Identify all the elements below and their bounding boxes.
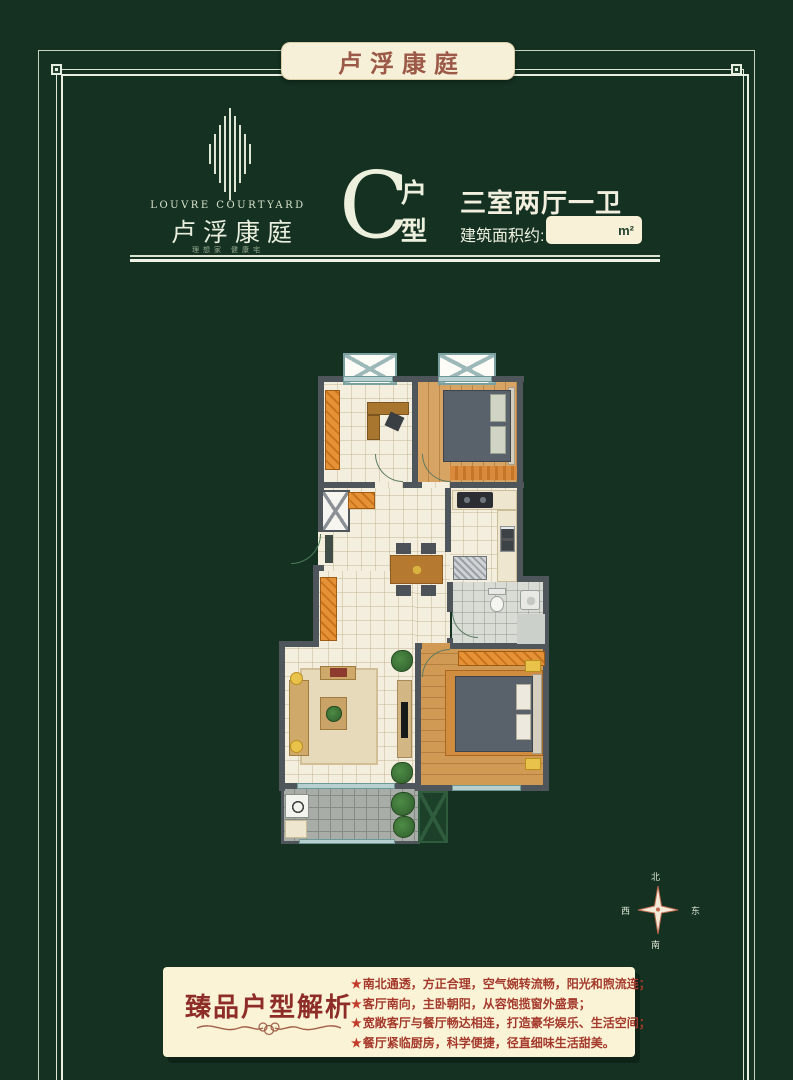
- compass-east-label: 东: [691, 904, 700, 917]
- master-headboard: [532, 674, 542, 754]
- wall-study-bedroom2: [412, 376, 418, 482]
- entrance-doormat: [325, 535, 333, 563]
- kitchen-stove: [457, 492, 493, 508]
- washing-machine: [285, 794, 309, 818]
- logo-name-en: LOUVRE COURTYARD: [130, 200, 326, 211]
- bathroom-shower-area: [517, 614, 545, 644]
- project-name: 卢浮康庭: [330, 44, 466, 79]
- living-cabinet: [320, 577, 337, 641]
- master-nightstand-2: [525, 758, 541, 770]
- study-desk-return: [367, 415, 380, 440]
- analysis-point-text: 宽敞客厅与餐厅畅达相连，打造豪华娱乐、生活空间；: [363, 1016, 651, 1030]
- bathroom-basin: [520, 590, 540, 610]
- window-sill-study: [343, 376, 393, 382]
- dining-chair-1: [396, 543, 411, 554]
- door-arc-entrance: [291, 534, 321, 564]
- master-pillow-2: [516, 714, 531, 740]
- wall-kitchen-dining: [445, 488, 451, 552]
- living-side-table-1: [290, 672, 303, 685]
- window-living-balcony: [297, 783, 395, 789]
- kitchen-fridge: [453, 556, 487, 580]
- wall-balcony-left: [281, 788, 284, 843]
- analysis-point-text: 客厅南向，主卧朝阳，从容饱揽窗外盛景；: [363, 997, 591, 1011]
- door-gap-study: [375, 482, 403, 488]
- wall-mid-horizontal: [318, 482, 524, 488]
- logo-bars-icon: [207, 106, 253, 202]
- header-separator-thick: [130, 259, 660, 262]
- compass-north-label: 北: [651, 870, 660, 883]
- dining-chair-3: [396, 585, 411, 596]
- study-wardrobe: [325, 390, 340, 470]
- master-pillow-1: [516, 684, 531, 710]
- toilet-bowl: [490, 596, 504, 612]
- area-unit: m²: [618, 223, 634, 238]
- shaft-box: [321, 490, 350, 532]
- analysis-point-text: 餐厅紧临厨房，科学便捷，径直细味生活甜美。: [363, 1036, 615, 1050]
- floor-plan: [275, 350, 570, 850]
- kitchen-sink-basin-2: [502, 541, 513, 550]
- wall-balcony-right-stub: [395, 783, 420, 789]
- study-desk: [367, 402, 409, 415]
- wall-left-upper: [318, 376, 324, 488]
- analysis-point: ★客厅南向，主卧朝阳，从容饱揽窗外盛景；: [351, 995, 629, 1015]
- window-master: [452, 785, 521, 791]
- analysis-point-text: 南北通透，方正合理，空气婉转流畅，阳光和煦流连；: [363, 977, 651, 991]
- compass-west-label: 西: [621, 904, 630, 917]
- living-side-table-2: [290, 740, 303, 753]
- star-bullet-icon: ★: [351, 977, 362, 991]
- wall-balcony-left-stub: [285, 783, 297, 789]
- dining-table: [390, 555, 443, 584]
- window-balcony: [299, 839, 395, 844]
- area-label: 建筑面积约:: [460, 222, 544, 246]
- flourish-icon: [193, 1019, 345, 1037]
- door-gap-master: [422, 643, 450, 649]
- star-bullet-icon: ★: [351, 1036, 362, 1050]
- star-bullet-icon: ★: [351, 997, 362, 1011]
- analysis-point: ★南北通透，方正合理，空气婉转流畅，阳光和煦流连；: [351, 975, 629, 995]
- dining-chair-2: [421, 543, 436, 554]
- logo-tagline: 理想家 健康宅: [130, 245, 326, 255]
- compass-south-label: 南: [651, 938, 660, 951]
- unit-layout: 三室两厅一卫: [460, 183, 622, 220]
- bedroom2-pillow-2: [490, 426, 506, 454]
- title-banner: 卢浮康庭: [281, 42, 515, 80]
- unit-type-suffix-bottom: 型: [401, 218, 427, 244]
- toilet-tank: [488, 588, 506, 595]
- wall-left-low: [313, 565, 319, 647]
- analysis-box: 臻品户型解析 ★南北通透，方正合理，空气婉转流畅，阳光和煦流连； ★客厅南向，主…: [163, 967, 635, 1057]
- wall-master-bottom-right: [521, 785, 549, 791]
- bedroom2-rug: [450, 466, 517, 480]
- master-nightstand-1: [525, 660, 541, 672]
- dining-chair-4: [421, 585, 436, 596]
- bedroom2-pillow-1: [490, 394, 506, 422]
- unit-type-suffix-top: 户: [401, 180, 427, 206]
- entry-shoe-cabinet: [348, 492, 375, 509]
- unit-type-suffix: 户 型: [401, 180, 427, 244]
- frame-corner-ornament-right: [731, 64, 742, 75]
- compass-star-icon: [636, 884, 680, 936]
- analysis-point: ★餐厅紧临厨房，科学便捷，径直细味生活甜美。: [351, 1034, 629, 1054]
- wall-step2: [279, 641, 319, 647]
- star-bullet-icon: ★: [351, 1016, 362, 1030]
- wall-living-master: [415, 649, 421, 791]
- tv: [401, 702, 408, 738]
- frame-corner-ornament-left: [51, 64, 62, 75]
- wall-right-upper: [517, 376, 523, 582]
- analysis-point: ★宽敞客厅与餐厅畅达相连，打造豪华娱乐、生活空间；: [351, 1014, 629, 1034]
- area-value-box: m²: [546, 216, 642, 244]
- wall-left-lowest: [279, 641, 285, 791]
- ac-platform-box: [418, 791, 448, 843]
- window-sill-bedroom2: [438, 376, 492, 382]
- logo-name-cn: 卢浮康庭: [130, 213, 333, 249]
- analysis-points-list: ★南北通透，方正合理，空气婉转流畅，阳光和煦流连； ★客厅南向，主卧朝阳，从容饱…: [351, 975, 629, 1053]
- wall-bath-hall: [447, 582, 453, 612]
- living-bench-cushion: [330, 668, 347, 677]
- kitchen-sink-basin-1: [502, 529, 513, 538]
- balcony-cabinet: [285, 820, 307, 838]
- flyer-page: 卢浮康庭 LOUVRE COURTYARD 卢浮康庭 理想家 健康宅 C 户 型…: [0, 0, 793, 1080]
